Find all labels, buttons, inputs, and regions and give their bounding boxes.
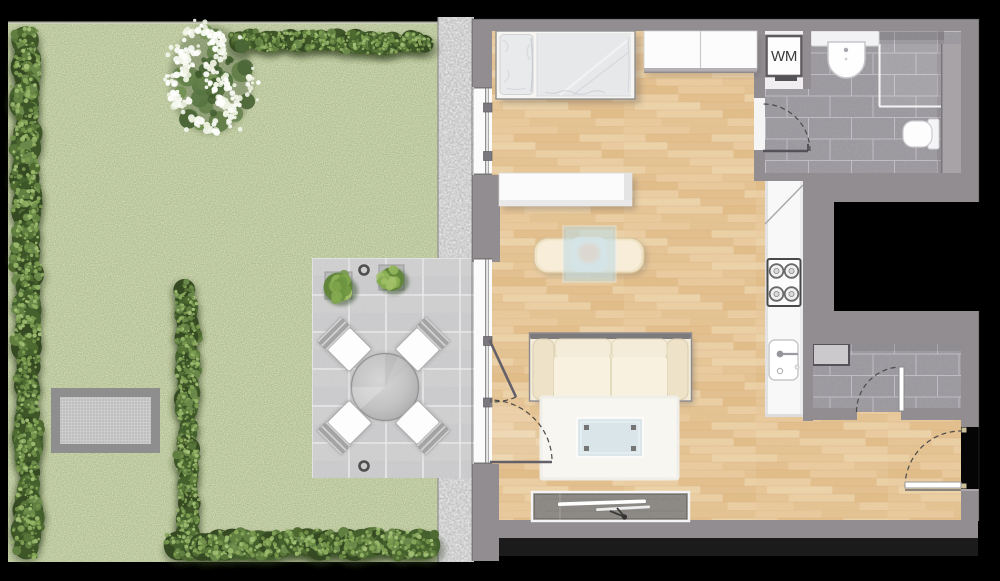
svg-text:WM: WM [771,48,797,65]
